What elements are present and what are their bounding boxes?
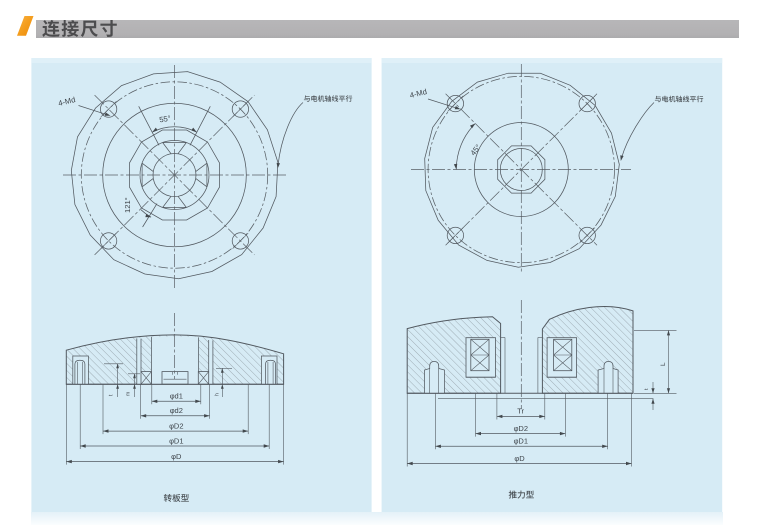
svg-text:Tr: Tr [517, 406, 524, 415]
svg-text:55°: 55° [159, 114, 172, 125]
svg-text:m: m [126, 392, 132, 396]
svg-text:L: L [660, 362, 667, 366]
svg-text:φD1: φD1 [514, 437, 528, 446]
svg-text:φD1: φD1 [169, 436, 183, 445]
svg-text:φD: φD [171, 452, 182, 461]
svg-text:φd1: φd1 [170, 392, 183, 401]
svg-text:φD2: φD2 [514, 424, 528, 433]
svg-text:φd2: φd2 [170, 406, 183, 415]
svg-text:φD: φD [514, 454, 525, 463]
svg-text:h: h [215, 393, 221, 396]
svg-text:φD2: φD2 [169, 421, 183, 430]
svg-text:121°: 121° [123, 197, 132, 213]
